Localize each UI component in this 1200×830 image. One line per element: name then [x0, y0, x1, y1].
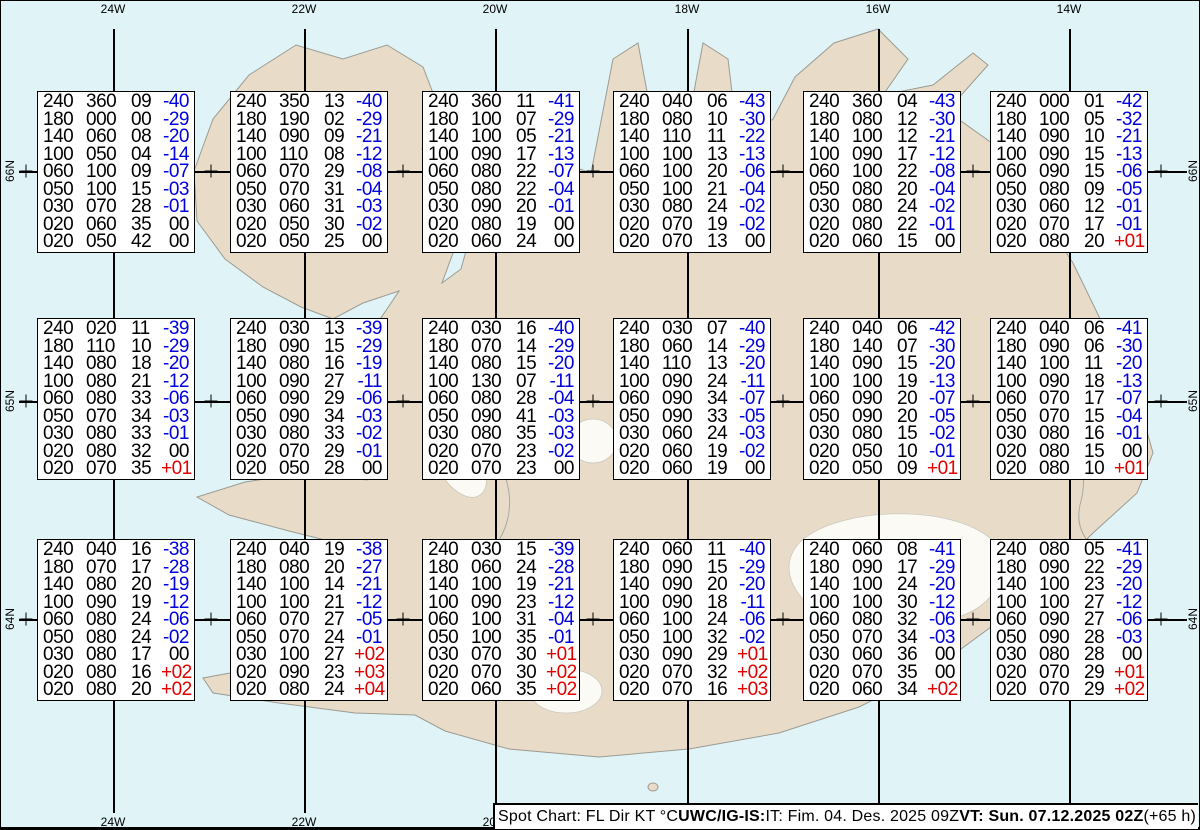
spot-data-row: 24036011-41	[428, 93, 574, 111]
kt-value: 12	[897, 128, 927, 146]
spot-data-row: 02008024+04	[236, 681, 382, 699]
kt-value: 09	[324, 128, 354, 146]
temp-value: -41	[927, 541, 955, 559]
temp-value: -21	[1114, 128, 1142, 146]
spot-data-box: 24036009-4018000000-2914006008-201000500…	[37, 91, 195, 253]
spot-data-box: 24008005-4118009022-2914010023-201001002…	[990, 539, 1148, 701]
temp-value: -40	[737, 541, 765, 559]
fl-value: 140	[43, 128, 86, 146]
spot-data-row: 0200702300	[428, 460, 574, 478]
dir-value: 080	[86, 355, 131, 373]
temp-value: -20	[737, 576, 765, 594]
temp-value: -21	[354, 576, 382, 594]
dir-value: 060	[852, 233, 897, 251]
spot-data-row: 0200602400	[428, 233, 574, 251]
spot-data-row: 14010011-20	[996, 355, 1142, 373]
spot-marker-hbar	[587, 618, 600, 620]
spot-data-box: 24002011-3918011010-2914008018-201000802…	[37, 318, 195, 480]
spot-data-row: 02006034+02	[809, 681, 955, 699]
dir-value: 030	[471, 541, 516, 559]
footer-text-segment: (+65 h)	[1143, 808, 1196, 826]
temp-value: +02	[927, 681, 958, 699]
parallel-label-right: 65N	[1187, 390, 1199, 412]
spot-data-row: 0200601900	[619, 460, 765, 478]
fl-value: 240	[809, 320, 852, 338]
kt-value: 10	[1084, 460, 1114, 478]
temp-value: -40	[354, 93, 382, 111]
temp-value: -38	[161, 541, 189, 559]
kt-value: 09	[897, 460, 927, 478]
fl-value: 020	[809, 233, 852, 251]
dir-value: 080	[1039, 460, 1084, 478]
dir-value: 070	[471, 460, 516, 478]
spot-data-row: 14010005-21	[428, 128, 574, 146]
kt-value: 16	[324, 355, 354, 373]
spot-data-box: 24036011-4118010007-2914010005-211000901…	[422, 91, 580, 253]
temp-value: -40	[737, 320, 765, 338]
kt-value: 15	[516, 355, 546, 373]
fl-value: 020	[43, 681, 86, 699]
spot-marker	[205, 395, 218, 408]
meridian-label-top: 22W	[292, 3, 317, 15]
spot-data-row: 24004019-38	[236, 541, 382, 559]
dir-value: 090	[662, 576, 707, 594]
kt-value: 25	[324, 233, 354, 251]
kt-value: 06	[897, 320, 927, 338]
dir-value: 360	[471, 93, 516, 111]
fl-value: 240	[43, 541, 86, 559]
spot-data-row: 14011013-20	[619, 355, 765, 373]
temp-value: -42	[927, 320, 955, 338]
spot-data-row: 24000001-42	[996, 93, 1142, 111]
footer-bar: Spot Chart: FL Dir KT °C UWC/IG-IS: IT: …	[493, 803, 1198, 829]
spot-data-row: 24003016-40	[428, 320, 574, 338]
fl-value: 140	[809, 576, 852, 594]
spot-marker-hbar	[967, 170, 980, 172]
spot-data-row: 14009010-21	[996, 128, 1142, 146]
spot-marker	[1155, 613, 1168, 626]
spot-data-row: 24035013-40	[236, 93, 382, 111]
kt-value: 05	[516, 128, 546, 146]
spot-data-row: 24036004-43	[809, 93, 955, 111]
kt-value: 10	[1084, 128, 1114, 146]
kt-value: 15	[897, 355, 927, 373]
spot-data-box: 24035013-4018019002-2914009009-211001100…	[230, 91, 388, 253]
meridian-label-top: 24W	[101, 3, 126, 15]
spot-marker	[1155, 165, 1168, 178]
spot-marker-hbar	[587, 400, 600, 402]
spot-marker-hbar	[205, 170, 218, 172]
dir-value: 100	[1039, 355, 1084, 373]
dir-value: 040	[852, 320, 897, 338]
temp-value: -39	[161, 320, 189, 338]
fl-value: 140	[428, 128, 471, 146]
spot-marker	[20, 395, 33, 408]
temp-value: -20	[161, 128, 189, 146]
fl-value: 020	[428, 681, 471, 699]
spot-data-box: 24003015-3918006024-2814010019-211000902…	[422, 539, 580, 701]
spot-marker	[587, 613, 600, 626]
temp-value: 00	[354, 233, 382, 251]
dir-value: 350	[279, 93, 324, 111]
spot-marker	[205, 165, 218, 178]
spot-data-row: 0200502800	[236, 460, 382, 478]
spot-marker-hbar	[20, 618, 33, 620]
dir-value: 070	[1039, 681, 1084, 699]
parallel-label-right: 66N	[1187, 160, 1199, 182]
spot-marker-hbar	[205, 400, 218, 402]
fl-value: 020	[619, 681, 662, 699]
spot-marker-hbar	[777, 170, 790, 172]
temp-value: -39	[354, 320, 382, 338]
spot-data-row: 02008020+02	[43, 681, 189, 699]
spot-data-row: 14010019-21	[428, 576, 574, 594]
spot-marker-hbar	[777, 400, 790, 402]
spot-data-row: 24003015-39	[428, 541, 574, 559]
kt-value: 23	[516, 460, 546, 478]
kt-value: 18	[131, 355, 161, 373]
temp-value: -21	[546, 576, 574, 594]
dir-value: 100	[1039, 576, 1084, 594]
spot-data-row: 02007029+02	[996, 681, 1142, 699]
footer-bold-segment: UWC/IG-IS:	[678, 808, 765, 826]
fl-value: 240	[809, 541, 852, 559]
dir-value: 030	[662, 320, 707, 338]
temp-value: 00	[161, 233, 189, 251]
kt-value: 20	[131, 576, 161, 594]
spot-marker	[587, 395, 600, 408]
spot-data-row: 14009020-20	[619, 576, 765, 594]
fl-value: 020	[428, 233, 471, 251]
footer-text-segment: IT: Fim. 04. Des. 2025 09Z	[765, 808, 959, 826]
temp-value: -40	[161, 93, 189, 111]
dir-value: 030	[279, 320, 324, 338]
dir-value: 060	[471, 233, 516, 251]
dir-value: 080	[86, 681, 131, 699]
spot-data-row: 02008020+01	[996, 233, 1142, 251]
spot-data-row: 24008005-41	[996, 541, 1142, 559]
fl-value: 020	[428, 460, 471, 478]
spot-data-row: 24002011-39	[43, 320, 189, 338]
fl-value: 240	[809, 93, 852, 111]
spot-marker	[777, 395, 790, 408]
meridian-label-top: 16W	[866, 3, 891, 15]
spot-marker-hbar	[967, 400, 980, 402]
dir-value: 360	[86, 93, 131, 111]
temp-value: -20	[927, 576, 955, 594]
kt-value: 13	[707, 233, 737, 251]
spot-data-row: 24004016-38	[43, 541, 189, 559]
spot-marker-hbar	[1155, 170, 1168, 172]
spot-marker	[777, 613, 790, 626]
dir-value: 110	[662, 355, 707, 373]
kt-value: 42	[131, 233, 161, 251]
fl-value: 140	[619, 355, 662, 373]
meridian-label-top: 18W	[675, 3, 700, 15]
spot-data-box: 24003007-4018006014-2914011013-201000902…	[613, 318, 771, 480]
kt-value: 13	[324, 93, 354, 111]
dir-value: 100	[852, 128, 897, 146]
spot-data-row: 14010012-21	[809, 128, 955, 146]
spot-data-row: 24003007-40	[619, 320, 765, 338]
temp-value: -43	[927, 93, 955, 111]
dir-value: 050	[279, 460, 324, 478]
kt-value: 16	[516, 320, 546, 338]
spot-data-row: 14011011-22	[619, 128, 765, 146]
dir-value: 050	[86, 233, 131, 251]
fl-value: 140	[996, 355, 1039, 373]
kt-value: 07	[707, 320, 737, 338]
spot-data-box: 24004006-4318008010-3014011011-221001001…	[613, 91, 771, 253]
kt-value: 19	[707, 460, 737, 478]
temp-value: 00	[927, 233, 955, 251]
dir-value: 080	[279, 681, 324, 699]
fl-value: 020	[619, 460, 662, 478]
kt-value: 11	[707, 128, 737, 146]
spot-marker	[777, 165, 790, 178]
spot-marker-hbar	[587, 170, 600, 172]
kt-value: 20	[707, 576, 737, 594]
spot-marker-hbar	[20, 170, 33, 172]
spot-marker	[967, 395, 980, 408]
kt-value: 08	[131, 128, 161, 146]
spot-marker-hbar	[1155, 618, 1168, 620]
kt-value: 15	[516, 541, 546, 559]
spot-marker-hbar	[967, 618, 980, 620]
parallel-label-right: 64N	[1187, 608, 1199, 630]
fl-value: 140	[619, 576, 662, 594]
temp-value: -39	[546, 541, 574, 559]
dir-value: 100	[852, 576, 897, 594]
temp-value: -20	[546, 355, 574, 373]
spot-data-row: 24006008-41	[809, 541, 955, 559]
spot-marker-hbar	[397, 618, 410, 620]
fl-value: 240	[996, 320, 1039, 338]
kt-value: 16	[707, 681, 737, 699]
fl-value: 240	[996, 93, 1039, 111]
spot-marker	[587, 165, 600, 178]
spot-marker	[20, 165, 33, 178]
temp-value: +01	[927, 460, 958, 478]
kt-value: 28	[324, 460, 354, 478]
temp-value: -21	[546, 128, 574, 146]
spot-data-row: 0200502500	[236, 233, 382, 251]
spot-marker	[397, 395, 410, 408]
fl-value: 240	[619, 541, 662, 559]
spot-data-row: 14008018-20	[43, 355, 189, 373]
kt-value: 35	[131, 460, 161, 478]
kt-value: 29	[1084, 681, 1114, 699]
dir-value: 090	[1039, 128, 1084, 146]
fl-value: 020	[236, 681, 279, 699]
spot-data-box: 24006011-4018009015-2914009020-201000901…	[613, 539, 771, 701]
fl-value: 020	[996, 460, 1039, 478]
fl-value: 140	[43, 355, 86, 373]
spot-data-row: 24003013-39	[236, 320, 382, 338]
dir-value: 060	[852, 541, 897, 559]
temp-value: -42	[1114, 93, 1142, 111]
fl-value: 020	[236, 460, 279, 478]
temp-value: -40	[546, 320, 574, 338]
spot-marker-hbar	[205, 618, 218, 620]
fl-value: 140	[996, 576, 1039, 594]
fl-value: 240	[236, 541, 279, 559]
temp-value: -38	[354, 541, 382, 559]
fl-value: 240	[43, 320, 86, 338]
spot-data-row: 14009009-21	[236, 128, 382, 146]
fl-value: 240	[43, 93, 86, 111]
fl-value: 240	[619, 93, 662, 111]
spot-marker	[205, 613, 218, 626]
spot-data-row: 0200701300	[619, 233, 765, 251]
spot-data-row: 02005009+01	[809, 460, 955, 478]
temp-value: 00	[737, 460, 765, 478]
kt-value: 20	[1084, 233, 1114, 251]
kt-value: 11	[516, 93, 546, 111]
temp-value: +01	[1114, 460, 1145, 478]
meridian-label-top: 20W	[483, 3, 508, 15]
kt-value: 11	[707, 541, 737, 559]
spot-data-row: 24006011-40	[619, 541, 765, 559]
kt-value: 09	[131, 93, 161, 111]
spot-marker-hbar	[397, 170, 410, 172]
kt-value: 16	[131, 541, 161, 559]
fl-value: 240	[619, 320, 662, 338]
dir-value: 080	[471, 355, 516, 373]
dir-value: 060	[852, 681, 897, 699]
fl-value: 140	[809, 128, 852, 146]
temp-value: -20	[927, 355, 955, 373]
dir-value: 060	[662, 541, 707, 559]
temp-value: 00	[546, 233, 574, 251]
dir-value: 100	[471, 128, 516, 146]
temp-value: -19	[161, 576, 189, 594]
dir-value: 040	[279, 541, 324, 559]
dir-value: 040	[1039, 320, 1084, 338]
dir-value: 040	[662, 93, 707, 111]
footer-bold-segment: VT: Sun. 07.12.2025 02Z	[959, 808, 1143, 826]
temp-value: +01	[161, 460, 192, 478]
fl-value: 020	[236, 233, 279, 251]
spot-data-box: 24004019-3818008020-2714010014-211001002…	[230, 539, 388, 701]
dir-value: 050	[279, 233, 324, 251]
temp-value: -41	[1114, 541, 1142, 559]
kt-value: 01	[1084, 93, 1114, 111]
temp-value: -41	[1114, 320, 1142, 338]
temp-value: 00	[737, 233, 765, 251]
fl-value: 140	[996, 128, 1039, 146]
kt-value: 34	[897, 681, 927, 699]
fl-value: 020	[809, 681, 852, 699]
spot-data-row: 14008016-19	[236, 355, 382, 373]
temp-value: -22	[737, 128, 765, 146]
spot-data-row: 24036009-40	[43, 93, 189, 111]
spot-marker-hbar	[397, 400, 410, 402]
dir-value: 070	[662, 233, 707, 251]
dir-value: 100	[471, 576, 516, 594]
dir-value: 000	[1039, 93, 1084, 111]
spot-marker-hbar	[777, 618, 790, 620]
temp-value: 00	[354, 460, 382, 478]
dir-value: 050	[852, 460, 897, 478]
fl-value: 140	[428, 576, 471, 594]
temp-value: -19	[354, 355, 382, 373]
dir-value: 060	[471, 681, 516, 699]
fl-value: 140	[619, 128, 662, 146]
spot-data-row: 14008020-19	[43, 576, 189, 594]
spot-data-row: 02008010+01	[996, 460, 1142, 478]
spot-data-box: 24036004-4318008012-3014010012-211000901…	[803, 91, 961, 253]
dir-value: 090	[279, 128, 324, 146]
fl-value: 020	[43, 233, 86, 251]
spot-chart: 24W24W22W22W20W20W18W18W16W16W14W14W66N6…	[0, 0, 1200, 830]
fl-value: 020	[619, 233, 662, 251]
temp-value: -20	[737, 355, 765, 373]
dir-value: 020	[86, 320, 131, 338]
spot-data-row: 14010024-20	[809, 576, 955, 594]
temp-value: +02	[1114, 681, 1145, 699]
spot-data-row: 02007035+01	[43, 460, 189, 478]
kt-value: 13	[707, 355, 737, 373]
spot-data-row: 0200504200	[43, 233, 189, 251]
kt-value: 23	[1084, 576, 1114, 594]
spot-marker	[967, 613, 980, 626]
spot-data-row: 14006008-20	[43, 128, 189, 146]
fl-value: 240	[428, 320, 471, 338]
fl-value: 020	[809, 460, 852, 478]
dir-value: 030	[471, 320, 516, 338]
fl-value: 140	[809, 355, 852, 373]
dir-value: 090	[852, 355, 897, 373]
fl-value: 140	[236, 128, 279, 146]
fl-value: 020	[996, 681, 1039, 699]
spot-marker-hbar	[1155, 400, 1168, 402]
temp-value: -20	[1114, 355, 1142, 373]
spot-data-row: 24004006-42	[809, 320, 955, 338]
spot-data-box: 24003016-4018007014-2914008015-201001300…	[422, 318, 580, 480]
spot-marker	[1155, 395, 1168, 408]
temp-value: -20	[1114, 576, 1142, 594]
kt-value: 15	[897, 233, 927, 251]
temp-value: +01	[1114, 233, 1145, 251]
temp-value: -20	[161, 355, 189, 373]
parallel-label-left: 66N	[4, 160, 16, 182]
fl-value: 240	[428, 541, 471, 559]
spot-data-row: 02006035+02	[428, 681, 574, 699]
spot-marker	[397, 165, 410, 178]
meridian-label-top: 14W	[1057, 3, 1082, 15]
kt-value: 11	[131, 320, 161, 338]
fl-value: 020	[43, 460, 86, 478]
spot-data-row: 14008015-20	[428, 355, 574, 373]
kt-value: 05	[1084, 541, 1114, 559]
temp-value: +02	[546, 681, 577, 699]
dir-value: 060	[86, 128, 131, 146]
kt-value: 06	[1084, 320, 1114, 338]
footer-text-segment: Spot Chart: FL Dir KT °C	[498, 808, 678, 826]
fl-value: 140	[43, 576, 86, 594]
temp-value: 00	[546, 460, 574, 478]
spot-data-row: 02007016+03	[619, 681, 765, 699]
dir-value: 080	[1039, 233, 1084, 251]
parallel-label-left: 65N	[4, 390, 16, 412]
island	[648, 783, 658, 791]
dir-value: 080	[86, 576, 131, 594]
fl-value: 240	[236, 93, 279, 111]
spot-data-box: 24003013-3918009015-2914008016-191000902…	[230, 318, 388, 480]
kt-value: 24	[897, 576, 927, 594]
fl-value: 140	[428, 355, 471, 373]
